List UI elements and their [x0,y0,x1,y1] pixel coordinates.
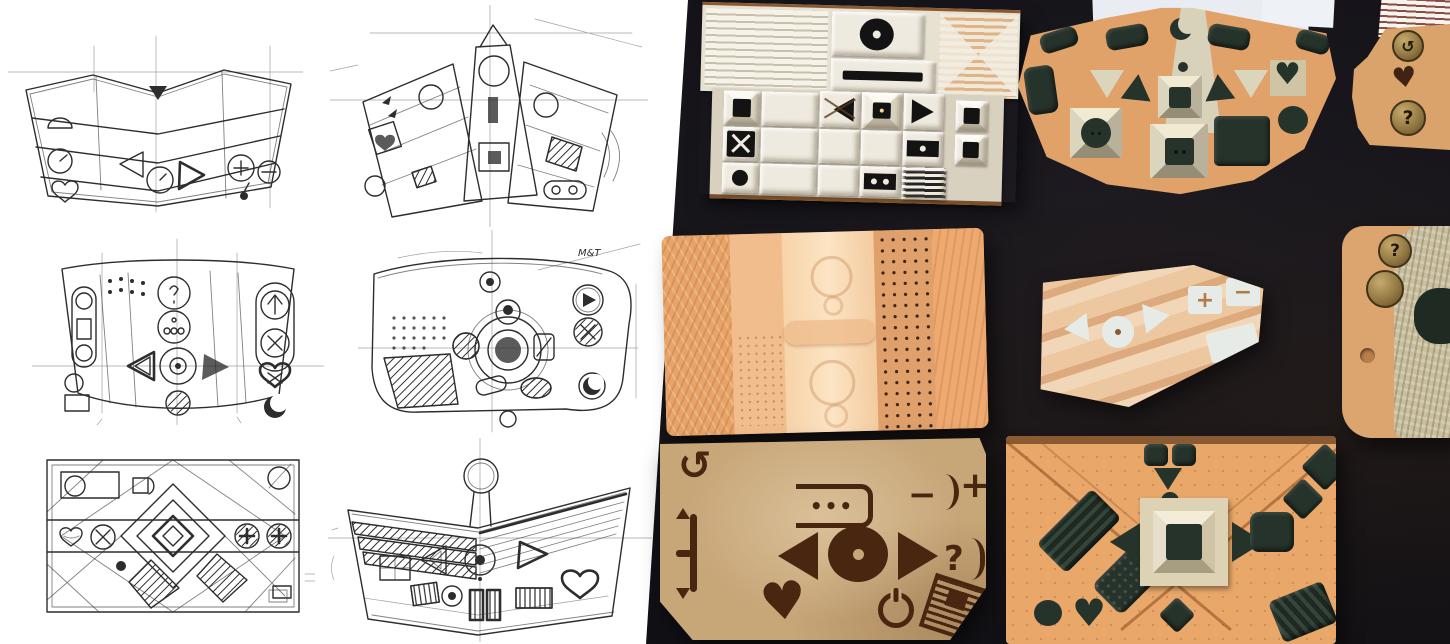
embossed-circle [823,296,844,317]
left-triangle-key [1110,522,1142,562]
question-icon: ? [944,542,964,576]
x-square-key [722,126,759,161]
right-triangle-icon [518,542,547,568]
green-triangle-key [1203,73,1236,102]
dot-grid-icon [108,277,145,296]
blank-coin [1366,270,1404,308]
heart-key: ♥ [1274,60,1301,90]
prototype-cardboard-wedge: + − [1036,262,1268,410]
x-circle-icon [574,318,602,346]
hatched-key-icon [412,166,436,187]
triangle-x-key [819,91,860,128]
hatch-region-icon [384,354,458,408]
blank-key [760,163,817,194]
hatched-circle-icon [166,391,190,415]
rounded-square-key [1250,512,1294,552]
left-triangle-key [1063,313,1090,343]
plus-arc-key: + [960,468,990,504]
black-square-key [954,135,987,166]
record-dial [828,526,888,582]
right-pill-icon [256,283,294,371]
green-square-key [1214,116,1270,166]
heart-icon: ♥ [757,570,810,635]
heart-icon: ♥ [1072,591,1106,635]
prototype-edge-remote-middle: ? [1342,226,1450,438]
corner-box-icon [61,472,119,498]
dot-icon [116,561,126,571]
cream-triangle-key [1090,70,1124,98]
record-circle-icon [859,18,894,51]
prototype-fan-remote: ♥ [1018,0,1336,202]
blank-key [760,127,817,162]
crescent-circle-icon [579,373,605,399]
prototype-etched-cardboard: ↺ ••• − + ? [660,438,986,640]
bar-icon [843,71,923,82]
barcode-key [901,167,946,200]
embossed-circle [824,403,849,428]
green-pill-key [1023,64,1059,116]
left-triangle-icon [120,152,143,177]
down-triangle-icon [676,588,690,599]
top-cluster-key [1172,444,1196,466]
striped-bands-icon [352,522,476,579]
prototype-white-tile-remote [698,2,1021,202]
heart-key: ♥ [1072,594,1106,632]
center-dial-icon [147,167,173,193]
green-pill-key [1038,25,1080,56]
dot-bar-key [902,131,943,166]
design-collage: M&T [0,0,1450,644]
question-icon: ? [1390,241,1400,261]
bottom-circle-icon [500,411,516,427]
ridge-bar [784,319,877,345]
sketch-diamond-remote [33,448,315,630]
fine-dot-patch [736,333,784,426]
tower-frame-key [1150,124,1208,178]
restart-icon: ↺ [678,443,712,489]
dot-circle-key [1102,316,1134,348]
play-circle-icon [573,285,603,315]
heart-icon [369,122,402,155]
sketch-striped-remote [328,438,652,644]
embossed-circle [809,359,856,406]
circle-key [722,162,759,193]
black-square-key [955,101,988,132]
heart-icon: ♥ [1274,57,1301,92]
circle-button-icon [419,85,443,109]
heart-key: ♥ [757,574,809,631]
cream-triangle-key [1234,70,1268,98]
blank-key [818,165,859,196]
circle-key [1034,600,1062,626]
corner-circle-icon [268,464,291,489]
two-dot-pill-icon [544,181,586,199]
minus-icon: − [1234,280,1252,305]
clay-body: ↺ ♥ ? [1352,24,1450,150]
striped-keys-icon [470,588,552,620]
handwritten-annotation: M&T [578,248,601,259]
wrinkled-band [661,234,734,436]
heart-icon: ♥ [1390,59,1419,95]
hatch-band-icon [546,137,582,171]
right-triangle-key [1142,300,1172,333]
two-dot-bar-key [860,166,901,197]
sketch-rounded-remote: M&T [338,226,646,438]
top-cluster-key [1144,444,1168,466]
up-triangle-icon [676,508,690,519]
heart-icon [260,363,290,387]
green-triangle-key [1121,73,1154,102]
plus-icon: + [1196,288,1214,313]
corner-keys-icon [269,586,291,602]
query-circle-icon [158,277,190,309]
circle-button-icon [65,374,83,392]
pyramid-key [861,92,902,129]
plus-circle-icon [228,155,254,181]
circle-button-icon [365,176,385,196]
dots-icon: ••• [810,494,854,518]
plus-circle-icon [235,524,259,548]
arrows-icon [382,96,397,118]
cardboard-edge [1006,436,1336,444]
embossed-circle [810,255,853,298]
circle-button-icon [534,93,558,117]
ridged-grip [704,8,828,89]
heart-cutout: ♥ [1390,62,1419,93]
prototype-foam-slab [661,228,988,436]
square-frame-icon [479,143,509,171]
blank-key [1205,322,1261,363]
green-pill-key [1294,28,1332,57]
triple-dot-circle-icon [158,311,190,343]
pyramid-frame-key [1140,498,1228,586]
question-coin: ? [1378,234,1412,268]
tower-dot [1178,62,1188,72]
perforated-dot-band [873,229,936,430]
prototype-foam-v-remote: ♥ [1006,436,1336,644]
plus-circle-icon [267,524,291,548]
hatch-pad [919,573,990,644]
circle-key [1278,106,1308,134]
circle-two-dot-frame-key [1070,108,1122,158]
sketch-fan-remote [330,5,648,231]
embossed-band [781,231,878,433]
top-circle-icon [480,272,500,292]
restart-coin: ↺ [1392,30,1424,62]
top-circle-icon [464,459,498,526]
fan-body: ♥ [1018,4,1336,200]
question-icon: ? [1402,107,1413,129]
clock-circle-icon [48,149,72,173]
ring-dial-icon [442,586,462,606]
wrinkled-band [931,228,988,429]
question-arc-curve [966,538,985,580]
sketch-chevron-remote [8,30,303,219]
right-triangle-key [903,93,944,130]
up-arrow-circle-icon [261,291,289,319]
blank-key [860,130,901,165]
minus-arc-key: − [908,478,937,512]
striped-bowtie-key [938,13,1018,97]
tower-circle-icon [479,56,509,86]
concentric-dial-icon [453,300,554,398]
power-icon [878,592,914,628]
tower-frame-key [1158,76,1202,118]
volume-slider [676,508,706,600]
key-grid [709,88,1004,206]
dot-grid-icon [392,316,445,349]
x-circle-icon [91,525,115,549]
pill-slider-icon [72,287,96,367]
heart-icon [562,571,598,598]
blank-key [761,91,818,126]
green-pill-key [1206,23,1251,52]
record-circle-key [831,11,924,57]
square-key-icon [65,395,89,411]
minus-key: − [1226,278,1260,306]
restart-key: ↺ [678,446,712,486]
plus-icon: + [960,465,990,506]
prototype-edge-remote-top: ↺ ♥ ? [1352,0,1450,158]
dark-blob-key [1414,288,1450,344]
plus-key: + [1188,286,1222,314]
minus-arc-curve [940,474,959,510]
green-pill-key [1104,23,1149,52]
blank-key [818,129,859,164]
tower-bar-icon [488,97,498,123]
dots-pill: ••• [796,484,873,528]
small-dot-key [1360,348,1375,363]
bar-key [830,58,935,94]
wedge-body: + − [1036,262,1268,410]
down-triangle-key [1154,468,1182,490]
restart-icon: ↺ [1401,37,1414,56]
right-triangle-key [898,532,938,580]
top-bar [700,2,1020,99]
hatch-key-icon [411,582,440,605]
card-body: ↺ ••• − + ? [660,438,986,640]
notch-triangle-icon [149,86,167,100]
black-square-key [723,90,760,125]
sketch-curved-remote [32,235,324,429]
minus-icon: − [908,475,937,515]
question-coin: ? [1390,100,1426,136]
crescent-cutout-icon [1170,18,1192,40]
